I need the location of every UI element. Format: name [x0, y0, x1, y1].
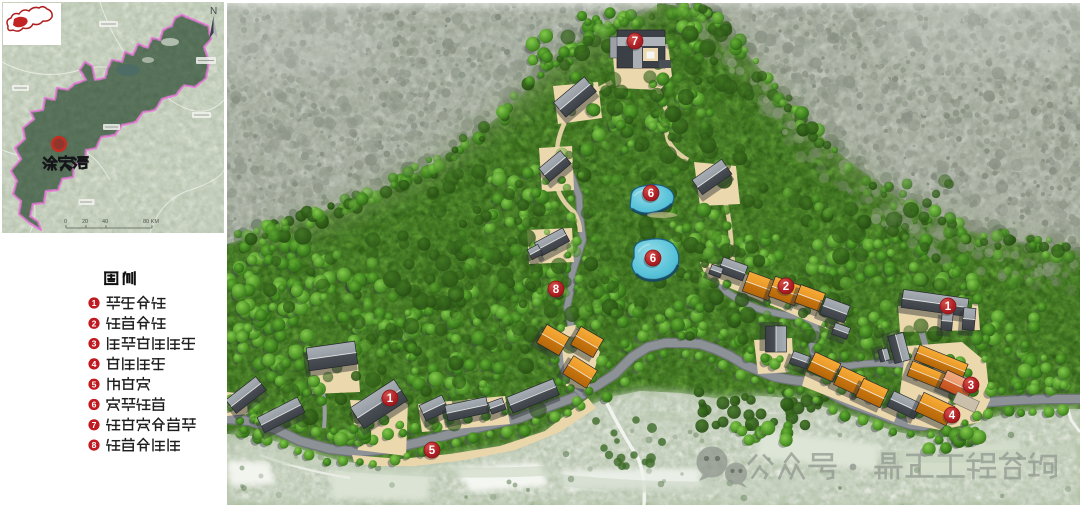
svg-text:40: 40	[102, 219, 108, 225]
svg-text:7: 7	[92, 420, 97, 430]
svg-text:N: N	[210, 6, 217, 17]
svg-text:5: 5	[92, 379, 97, 389]
svg-text:1: 1	[92, 298, 97, 308]
svg-text:6: 6	[92, 400, 97, 410]
svg-text:80 KM: 80 KM	[143, 219, 159, 225]
svg-text:20: 20	[82, 219, 88, 225]
svg-text:4: 4	[92, 359, 97, 369]
svg-text:0: 0	[64, 219, 67, 225]
svg-text:3: 3	[92, 339, 97, 349]
svg-text:8: 8	[92, 440, 97, 450]
svg-text:2: 2	[92, 318, 97, 328]
